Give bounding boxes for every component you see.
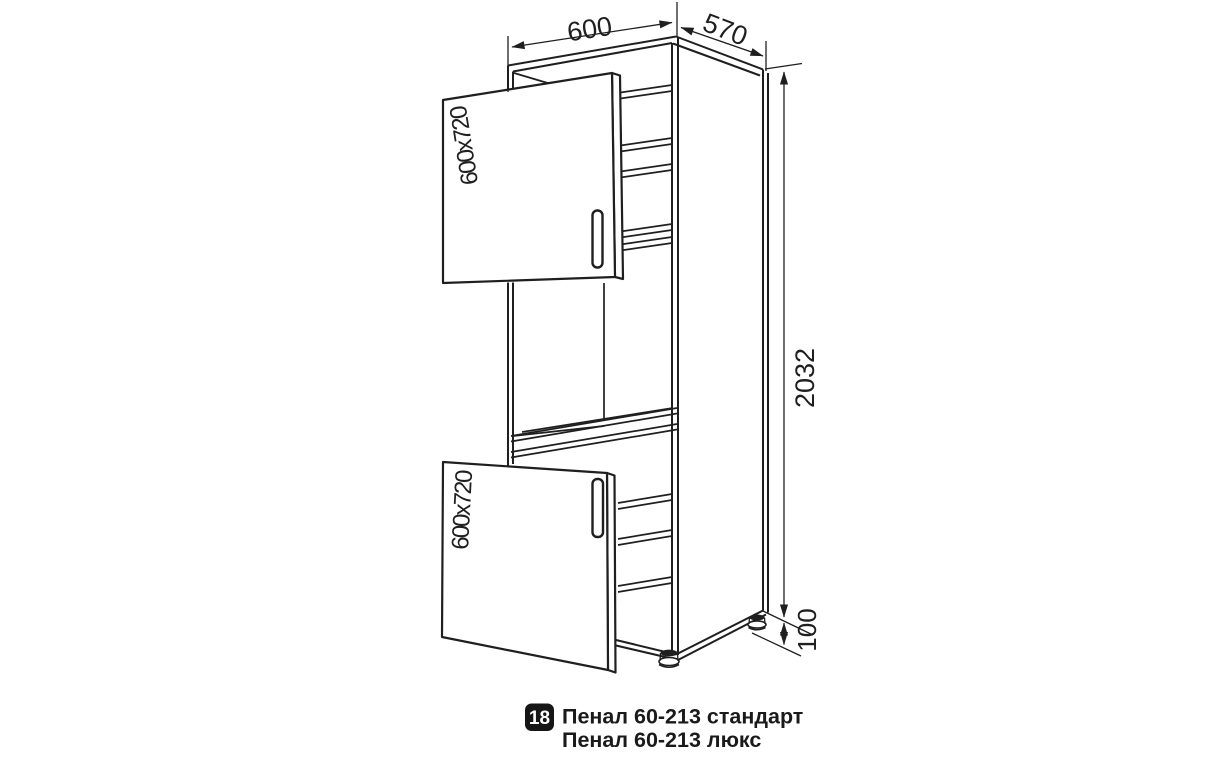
feet — [659, 615, 766, 668]
catalog-page: 600x720 600x720 600 570 2032 100 18 Пена… — [0, 0, 1230, 769]
upper-shelves — [617, 85, 672, 251]
bottom-door: 600x720 — [442, 462, 616, 673]
bottom-door-size-label: 600x720 — [447, 469, 478, 550]
caption-line-1: Пенал 60-213 стандарт — [562, 705, 803, 729]
bottom-door-handle — [593, 479, 604, 537]
caption-line-2: Пенал 60-213 люкс — [562, 728, 761, 752]
caption: 18 Пенал 60-213 стандарт Пенал 60-213 лю… — [525, 704, 803, 753]
width-dimension-label: 600 — [565, 11, 614, 48]
depth-dimension-label: 570 — [699, 8, 752, 52]
adjustable-foot-back — [748, 615, 766, 630]
middle-niche — [511, 283, 677, 458]
adjustable-foot-front — [659, 650, 679, 668]
dimension-height: 2032 — [763, 64, 820, 636]
top-door: 600x720 — [443, 73, 623, 283]
height-dimension-label: 2032 — [790, 348, 820, 408]
item-number: 18 — [529, 708, 550, 729]
top-door-handle — [593, 211, 603, 268]
legs-dimension-label: 100 — [792, 608, 822, 651]
cabinet-technical-drawing: 600x720 600x720 600 570 2032 100 18 Пена… — [0, 0, 1230, 769]
lower-shelves — [618, 494, 672, 592]
